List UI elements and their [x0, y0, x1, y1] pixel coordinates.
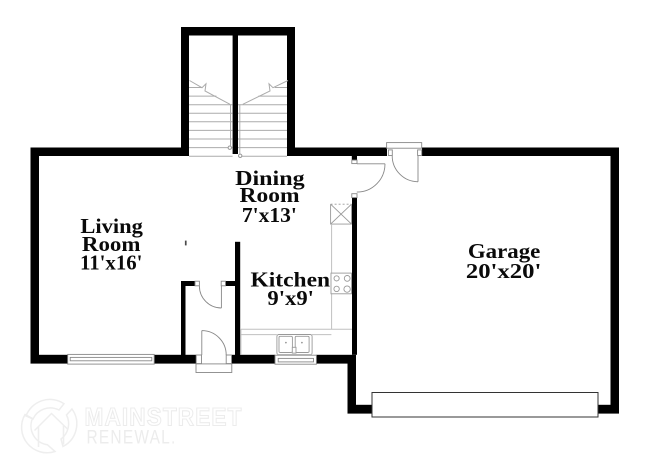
svg-text:RENEWAL.: RENEWAL. — [87, 428, 177, 449]
svg-text:7'x13': 7'x13' — [242, 203, 297, 227]
svg-text:20'x20': 20'x20' — [466, 259, 542, 283]
svg-text:9'x9': 9'x9' — [267, 286, 314, 310]
svg-text:11'x16': 11'x16' — [80, 251, 143, 275]
